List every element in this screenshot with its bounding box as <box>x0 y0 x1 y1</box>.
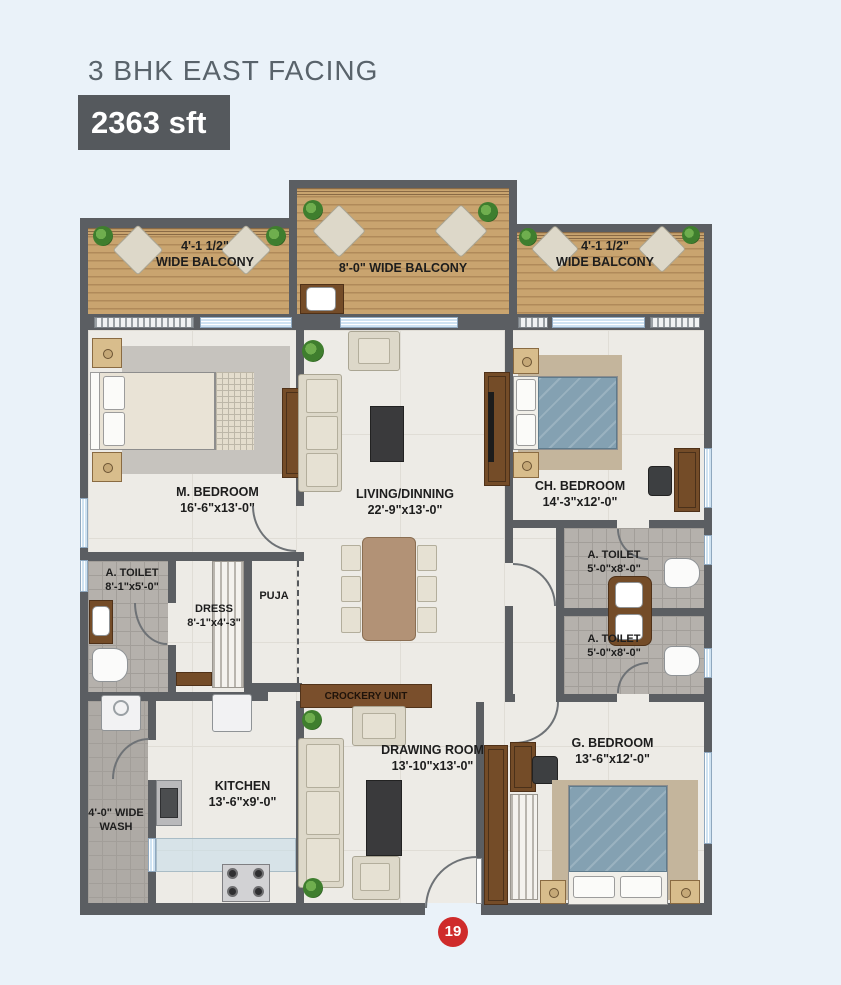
sofa-cushion <box>306 416 338 450</box>
plant <box>682 226 700 244</box>
wall <box>80 903 425 915</box>
wash-floor <box>88 701 148 903</box>
wall <box>148 701 156 740</box>
stove-burner <box>253 868 264 879</box>
puja-open-side <box>297 561 299 683</box>
room-name: WASH <box>84 820 148 834</box>
room-name: G. BEDROOM <box>535 735 690 751</box>
wall <box>88 552 304 561</box>
room-dims: 4'-0" WIDE <box>84 806 148 820</box>
toilet-wc <box>664 558 700 588</box>
wall <box>704 224 712 316</box>
sofa-cushion <box>306 453 338 487</box>
wall <box>649 520 712 528</box>
balcony-dim: 4'-1 1/2" <box>130 238 280 254</box>
vent-strip <box>94 317 194 328</box>
wall <box>289 180 297 314</box>
ch-bedroom-desk <box>674 448 700 512</box>
room-label-m-bedroom: M. BEDROOM 16'-6"x13'-0" <box>140 484 295 517</box>
wall <box>244 683 302 692</box>
room-dims: 13'-10"x13'-0" <box>355 758 510 774</box>
room-label-balcony-center: 8'-0" WIDE BALCONY <box>315 260 491 276</box>
room-dims: 16'-6"x13'-0" <box>140 500 295 516</box>
sliding-door <box>200 317 292 328</box>
window <box>704 752 712 844</box>
window <box>80 560 88 592</box>
plant <box>93 226 113 246</box>
plant <box>302 340 324 362</box>
nightstand <box>92 338 122 368</box>
room-label-a-toilet-left: A. TOILET 8'-1"x5'-0" <box>88 566 176 595</box>
window <box>704 648 712 678</box>
plant <box>478 202 498 222</box>
dining-chair <box>341 607 361 633</box>
sofa-cushion <box>306 744 340 788</box>
balcony-left-railing <box>88 228 289 236</box>
washing-machine-drum <box>113 700 129 716</box>
balcony-dim: 4'-1 1/2" <box>530 238 680 254</box>
balcony-name: 8'-0" WIDE BALCONY <box>315 260 491 276</box>
toilet-wc <box>664 646 700 676</box>
window <box>704 448 712 508</box>
pillow <box>620 876 662 898</box>
room-name: A. TOILET <box>88 566 176 580</box>
room-name: DRESS <box>168 602 260 616</box>
stove-burner <box>253 886 264 897</box>
wall <box>505 520 617 528</box>
pillow <box>516 379 536 411</box>
tv <box>488 392 494 462</box>
room-name: PUJA <box>250 589 298 603</box>
sliding-door <box>340 317 458 328</box>
g-bedroom-duvet <box>569 786 667 872</box>
room-name: M. BEDROOM <box>140 484 295 500</box>
room-name: A. TOILET <box>568 548 660 562</box>
room-dims: 5'-0"x8'-0" <box>568 562 660 576</box>
room-label-g-bedroom: G. BEDROOM 13'-6"x12'-0" <box>535 735 690 768</box>
dining-chair <box>341 545 361 571</box>
room-label-puja: PUJA <box>250 589 298 603</box>
balcony-name: WIDE BALCONY <box>530 254 680 270</box>
room-dims: 13'-6"x12'-0" <box>535 751 690 767</box>
dining-chair <box>417 576 437 602</box>
wall <box>168 645 176 692</box>
wall <box>649 694 712 702</box>
floor-plan-page: { "header": { "title": "3 BHK EAST FACIN… <box>0 0 841 985</box>
dining-chair <box>417 545 437 571</box>
stove-burner <box>227 886 238 897</box>
nightstand <box>540 880 566 904</box>
room-name: LIVING/DINNING <box>320 486 490 502</box>
bed-headboard <box>90 372 100 450</box>
vent-strip <box>518 317 548 328</box>
room-label-drawing-room: DRAWING ROOM 13'-10"x13'-0" <box>355 742 510 775</box>
nightstand <box>513 348 539 374</box>
window <box>80 498 88 548</box>
unit-number-marker: 19 <box>438 917 468 947</box>
balcony-center-railing <box>297 188 509 196</box>
wash-basin <box>92 606 110 636</box>
toilet-wc <box>92 648 128 682</box>
sofa-cushion <box>306 791 340 835</box>
stove-burner <box>227 868 238 879</box>
armchair-cushion <box>362 713 396 739</box>
room-name: CH. BEDROOM <box>495 478 665 494</box>
room-dims: 13'-6"x9'-0" <box>180 794 305 810</box>
sofa-cushion <box>306 838 340 882</box>
room-label-kitchen: KITCHEN 13'-6"x9'-0" <box>180 778 305 811</box>
room-dims: 22'-9"x13'-0" <box>320 502 490 518</box>
plant <box>303 878 323 898</box>
room-name: KITCHEN <box>180 778 305 794</box>
bed-blanket-grid <box>214 372 254 450</box>
fridge <box>212 694 252 732</box>
wall <box>80 218 297 228</box>
room-name: DRAWING ROOM <box>355 742 510 758</box>
wall <box>80 218 88 316</box>
balcony-name: WIDE BALCONY <box>130 254 280 270</box>
sliding-door <box>552 317 645 328</box>
wall <box>556 528 564 702</box>
armchair-cushion <box>358 338 390 364</box>
sofa-cushion <box>306 379 338 413</box>
main-entrance-door-leaf <box>476 858 482 904</box>
wall <box>505 528 513 563</box>
wall <box>509 180 517 314</box>
room-label-ch-bedroom: CH. BEDROOM 14'-3"x12'-0" <box>495 478 665 511</box>
wall <box>505 694 515 702</box>
pillow <box>573 876 615 898</box>
dining-chair <box>341 576 361 602</box>
floor-plan: CROCKERY UNIT 4'-1 1/2" WIDE BALCONY 8'-… <box>0 0 841 985</box>
g-bedroom-wardrobe-2 <box>510 794 538 900</box>
room-label-balcony-right: 4'-1 1/2" WIDE BALCONY <box>530 238 680 271</box>
dining-table <box>362 537 416 641</box>
nightstand <box>513 452 539 478</box>
ch-bedroom-duvet <box>538 377 617 449</box>
room-dims: 8'-1"x4'-3" <box>168 616 260 630</box>
window <box>148 838 156 872</box>
crockery-unit-label: CROCKERY UNIT <box>325 691 408 702</box>
plant <box>303 200 323 220</box>
room-label-dress: DRESS 8'-1"x4'-3" <box>168 602 260 631</box>
dining-chair <box>417 607 437 633</box>
room-dims: 14'-3"x12'-0" <box>495 494 665 510</box>
pillow <box>103 412 125 446</box>
wall <box>148 780 156 838</box>
wall <box>558 694 617 702</box>
nightstand <box>92 452 122 482</box>
coffee-table <box>366 780 402 856</box>
pillow <box>516 414 536 446</box>
crockery-unit: CROCKERY UNIT <box>300 684 432 708</box>
room-label-wash: 4'-0" WIDE WASH <box>84 806 148 835</box>
vent-strip <box>650 317 700 328</box>
room-label-living: LIVING/DINNING 22'-9"x13'-0" <box>320 486 490 519</box>
nightstand <box>670 880 700 904</box>
pillow <box>103 376 125 410</box>
plant <box>302 710 322 730</box>
dress-shelf <box>176 672 212 686</box>
coffee-table <box>370 406 404 462</box>
wall <box>505 606 513 702</box>
room-label-a-toilet-bottom: A. TOILET 5'-0"x8'-0" <box>568 632 660 661</box>
wall <box>289 180 517 188</box>
wash-basin <box>615 582 643 608</box>
room-dims: 5'-0"x8'-0" <box>568 646 660 660</box>
room-label-a-toilet-top: A. TOILET 5'-0"x8'-0" <box>568 548 660 577</box>
armchair-cushion <box>360 863 390 891</box>
room-label-balcony-left: 4'-1 1/2" WIDE BALCONY <box>130 238 280 271</box>
window <box>704 535 712 565</box>
room-name: A. TOILET <box>568 632 660 646</box>
kitchen-sink <box>160 788 178 818</box>
balcony-wash-basin <box>306 287 336 311</box>
room-dims: 8'-1"x5'-0" <box>88 580 176 594</box>
wall <box>148 872 156 903</box>
